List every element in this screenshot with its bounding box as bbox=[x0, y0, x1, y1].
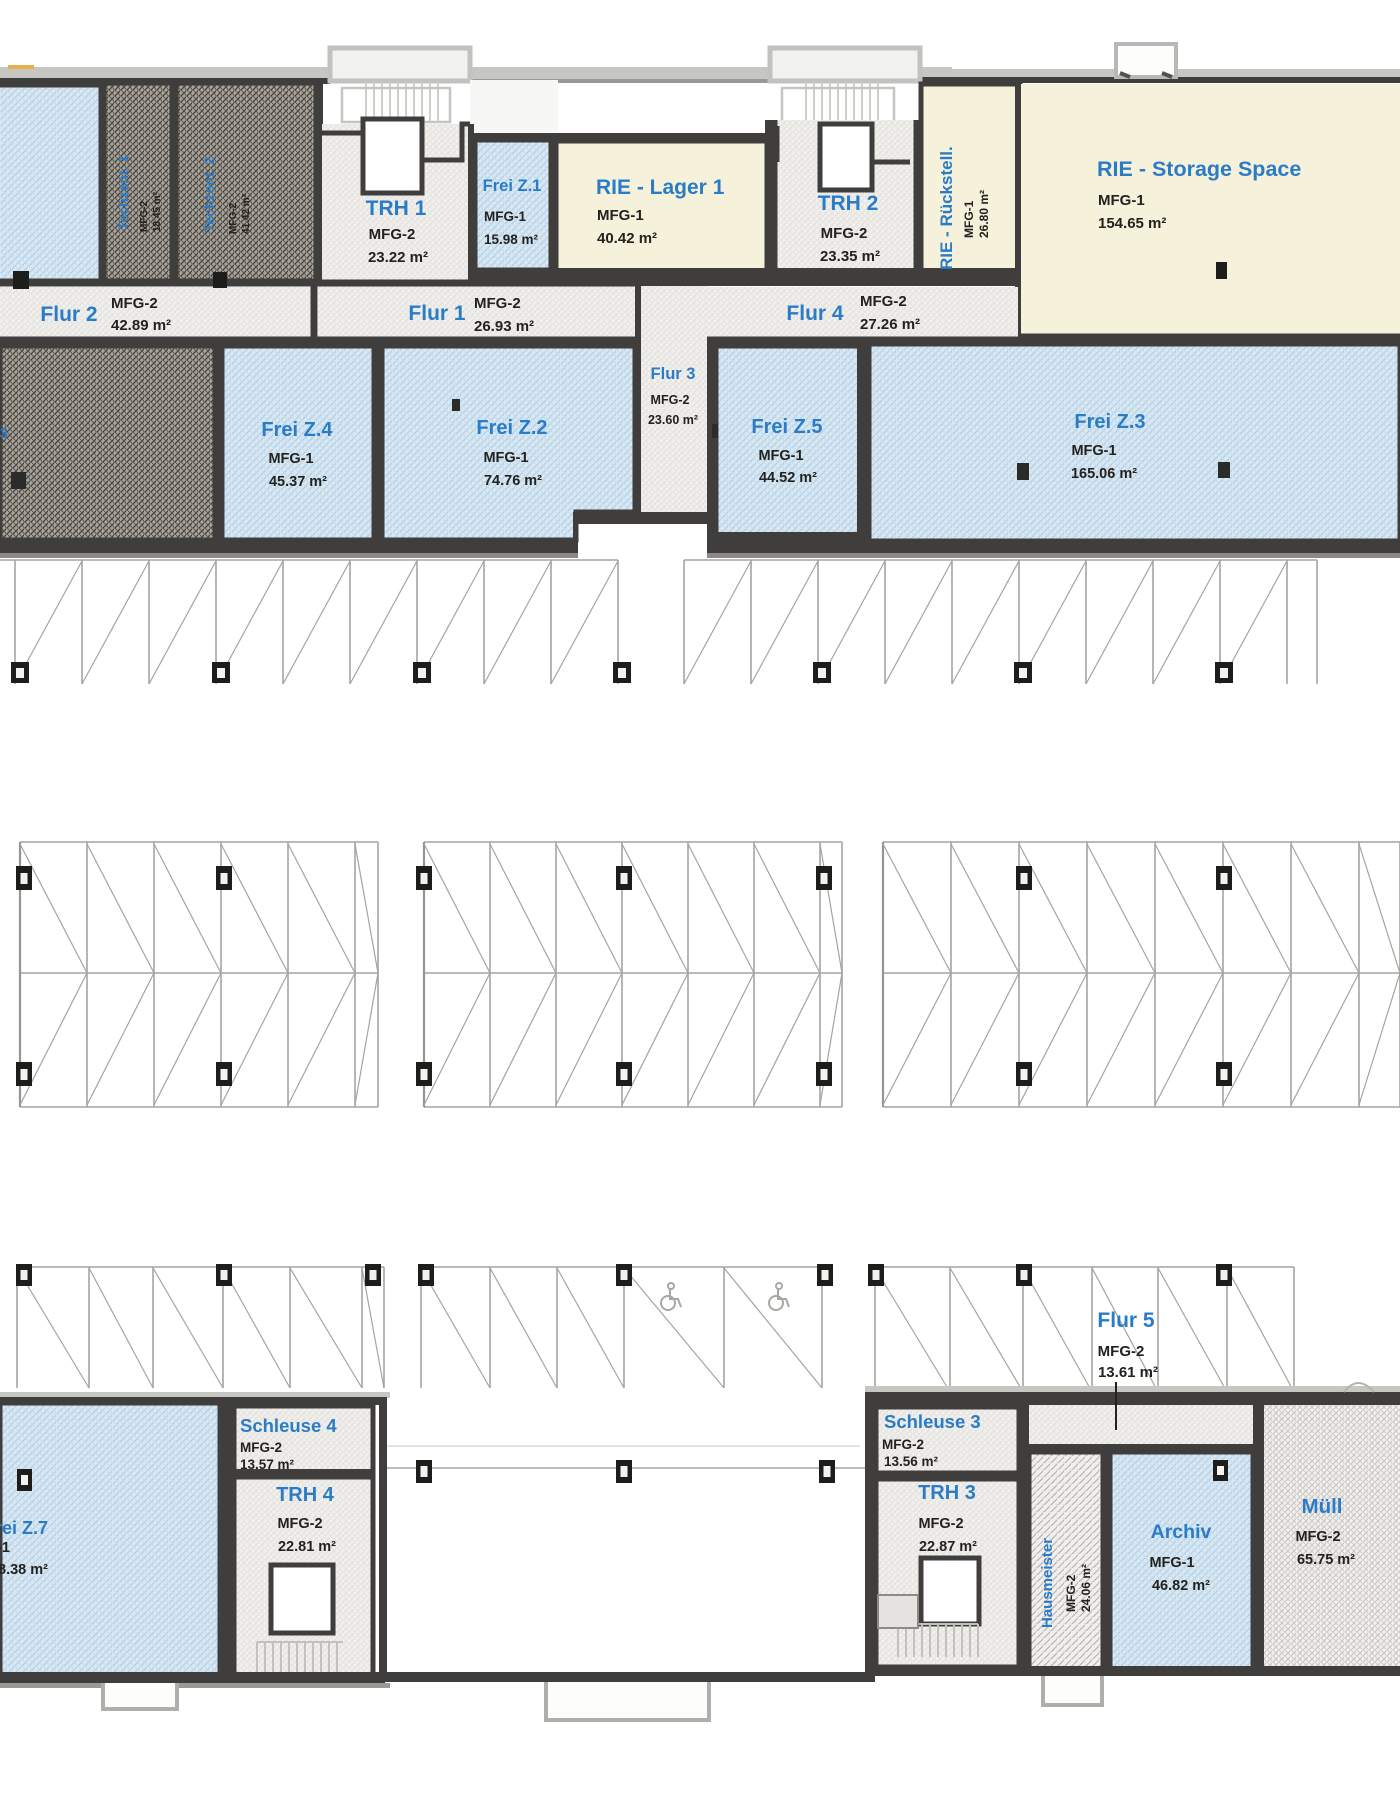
svg-text:Frei Z.3: Frei Z.3 bbox=[1074, 411, 1145, 433]
svg-text:RIE - Rückstell.: RIE - Rückstell. bbox=[937, 146, 956, 270]
svg-text:TRH 3: TRH 3 bbox=[918, 1482, 976, 1504]
svg-text:Hausmeister: Hausmeister bbox=[1039, 1538, 1056, 1628]
svg-text:MFG-2: MFG-2 bbox=[918, 1516, 963, 1532]
svg-text:Frei Z.5: Frei Z.5 bbox=[751, 416, 822, 438]
svg-text:27.26 m²: 27.26 m² bbox=[860, 316, 920, 333]
svg-text:MFG-2: MFG-2 bbox=[651, 393, 690, 407]
svg-text:MFG-1: MFG-1 bbox=[268, 451, 313, 467]
svg-text:TRH 2: TRH 2 bbox=[818, 192, 879, 215]
svg-text:MFG-2: MFG-2 bbox=[277, 1516, 322, 1532]
svg-text:22.81 m²: 22.81 m² bbox=[278, 1539, 336, 1555]
svg-text:Flur 5: Flur 5 bbox=[1097, 1309, 1154, 1332]
svg-text:13.61 m²: 13.61 m² bbox=[1098, 1364, 1158, 1381]
svg-text:RIE - Lager 1: RIE - Lager 1 bbox=[596, 176, 725, 199]
svg-text:Flur 3: Flur 3 bbox=[651, 365, 696, 383]
svg-text:23.35 m²: 23.35 m² bbox=[820, 248, 880, 265]
svg-text:23.22 m²: 23.22 m² bbox=[368, 249, 428, 266]
svg-text:154.65 m²: 154.65 m² bbox=[1098, 215, 1166, 232]
svg-text:Frei Z.7: Frei Z.7 bbox=[0, 1518, 48, 1538]
svg-text:MFG-1: MFG-1 bbox=[1071, 443, 1116, 459]
svg-text:MFG-2: MFG-2 bbox=[1064, 1574, 1078, 1612]
svg-text:TRH 4: TRH 4 bbox=[276, 1484, 335, 1506]
svg-text:45.37 m²: 45.37 m² bbox=[269, 474, 327, 490]
svg-text:RIE - Storage Space: RIE - Storage Space bbox=[1097, 157, 1301, 181]
svg-text:Techzent. 2: Techzent. 2 bbox=[201, 157, 217, 232]
svg-text:Müll: Müll bbox=[1302, 1495, 1343, 1518]
svg-text:MFG-2: MFG-2 bbox=[860, 293, 907, 310]
svg-text:Flur 1: Flur 1 bbox=[408, 302, 465, 325]
svg-text:MFG-2: MFG-2 bbox=[882, 1437, 924, 1452]
svg-text:MFG-1: MFG-1 bbox=[1149, 1555, 1194, 1571]
svg-text:24.06 m²: 24.06 m² bbox=[1079, 1564, 1093, 1612]
svg-text:MFG-2: MFG-2 bbox=[228, 202, 239, 234]
svg-text:MFG-2: MFG-2 bbox=[240, 1440, 282, 1455]
svg-text:Flur 2: Flur 2 bbox=[40, 303, 97, 326]
svg-text:MFG-2: MFG-2 bbox=[474, 295, 521, 312]
svg-text:26.80 m²: 26.80 m² bbox=[977, 190, 991, 238]
svg-text:MFG-2: MFG-2 bbox=[1098, 1343, 1145, 1360]
svg-text:Archiv: Archiv bbox=[1151, 1521, 1212, 1543]
svg-text:MFG-1: MFG-1 bbox=[483, 450, 528, 466]
svg-text:MFG-1: MFG-1 bbox=[962, 200, 976, 238]
svg-text:TRH 1: TRH 1 bbox=[366, 197, 427, 220]
svg-text:65.75 m²: 65.75 m² bbox=[1297, 1552, 1355, 1568]
svg-text:23.60 m²: 23.60 m² bbox=[648, 413, 698, 427]
svg-text:Schleuse 3: Schleuse 3 bbox=[884, 1411, 981, 1432]
svg-text:18.45 m²: 18.45 m² bbox=[152, 191, 163, 232]
svg-text:Flur 4: Flur 4 bbox=[786, 302, 843, 325]
svg-text:MFG-1: MFG-1 bbox=[597, 207, 644, 224]
svg-text:22.87 m²: 22.87 m² bbox=[919, 1539, 977, 1555]
svg-text:15.98 m²: 15.98 m² bbox=[484, 232, 539, 247]
svg-text:46.82 m²: 46.82 m² bbox=[1152, 1578, 1210, 1594]
svg-text:165.06 m²: 165.06 m² bbox=[1071, 466, 1137, 482]
svg-text:13.56 m²: 13.56 m² bbox=[884, 1454, 939, 1469]
svg-text:MFG-1: MFG-1 bbox=[0, 1540, 10, 1556]
svg-text:MFG-1: MFG-1 bbox=[1098, 192, 1145, 209]
svg-text:Frei Z.2: Frei Z.2 bbox=[476, 417, 547, 439]
svg-text:Frei Z.1: Frei Z.1 bbox=[483, 177, 542, 195]
svg-text:74.76 m²: 74.76 m² bbox=[484, 473, 542, 489]
svg-text:26.93 m²: 26.93 m² bbox=[474, 318, 534, 335]
svg-text:Frei Z.4: Frei Z.4 bbox=[261, 419, 333, 441]
svg-text:MFG-2: MFG-2 bbox=[139, 200, 150, 232]
svg-text:MFG-1: MFG-1 bbox=[484, 209, 526, 224]
svg-text:MFG-1: MFG-1 bbox=[758, 448, 803, 464]
svg-text:MFG-2: MFG-2 bbox=[111, 295, 158, 312]
svg-text:42.89 m²: 42.89 m² bbox=[111, 317, 171, 334]
svg-text:128.38 m²: 128.38 m² bbox=[0, 1562, 48, 1578]
svg-text:MFG-2: MFG-2 bbox=[821, 225, 868, 242]
svg-text:MFG-2: MFG-2 bbox=[369, 226, 416, 243]
svg-text:44.52 m²: 44.52 m² bbox=[759, 470, 817, 486]
svg-text:Schleuse 4: Schleuse 4 bbox=[240, 1415, 337, 1436]
svg-text:41.42 m²: 41.42 m² bbox=[241, 193, 252, 234]
svg-text:Techzent. 1: Techzent. 1 bbox=[115, 155, 131, 230]
svg-text:MFG-2: MFG-2 bbox=[1295, 1529, 1340, 1545]
svg-text:40.42 m²: 40.42 m² bbox=[597, 230, 657, 247]
svg-text:3: 3 bbox=[0, 425, 8, 442]
